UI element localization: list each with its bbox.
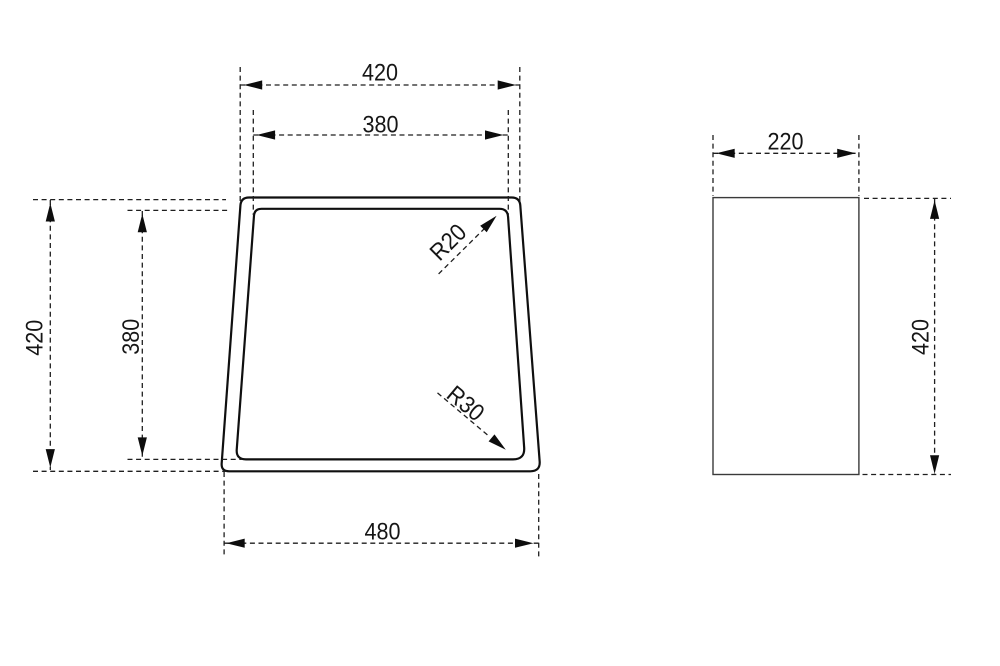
svg-text:420: 420 — [362, 60, 398, 87]
svg-text:380: 380 — [363, 111, 399, 138]
svg-text:420: 420 — [907, 319, 934, 355]
svg-text:480: 480 — [365, 518, 401, 545]
svg-text:220: 220 — [768, 129, 804, 156]
svg-text:380: 380 — [118, 319, 145, 355]
svg-text:420: 420 — [22, 320, 49, 356]
